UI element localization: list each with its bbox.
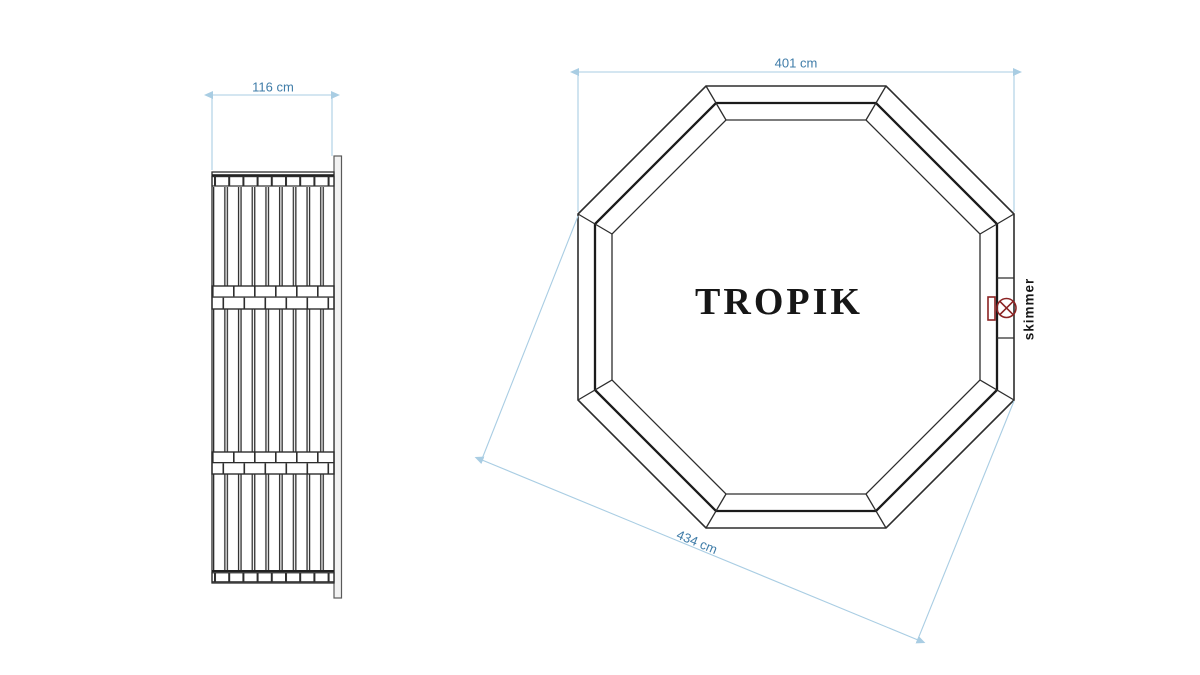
side-view-planks-1 [213,187,333,286]
skimmer-label: skimmer [1022,278,1037,341]
side-view-bottom-band [212,573,334,582]
drawing-linework [0,0,1200,675]
side-view-brick-band-2 [212,452,334,474]
side-width-dimension-label: 116 cm [252,80,294,95]
side-view-brick-band-1 [212,286,334,309]
side-view-planks-2 [213,309,333,452]
side-view-bottom-rail [212,570,334,572]
side-view-planks-3 [213,474,333,570]
dimension-116 [212,95,332,170]
side-view-corner-post [334,156,342,598]
pool-model-name: TROPIK [695,280,863,324]
side-view-top-band [212,177,334,186]
side-view-wall-elevation [212,156,342,598]
pool-technical-drawing: 116 cm 401 cm 434 cm TROPIK skimmer [0,0,1200,675]
octagon-width-dimension-label: 401 cm [775,56,818,71]
